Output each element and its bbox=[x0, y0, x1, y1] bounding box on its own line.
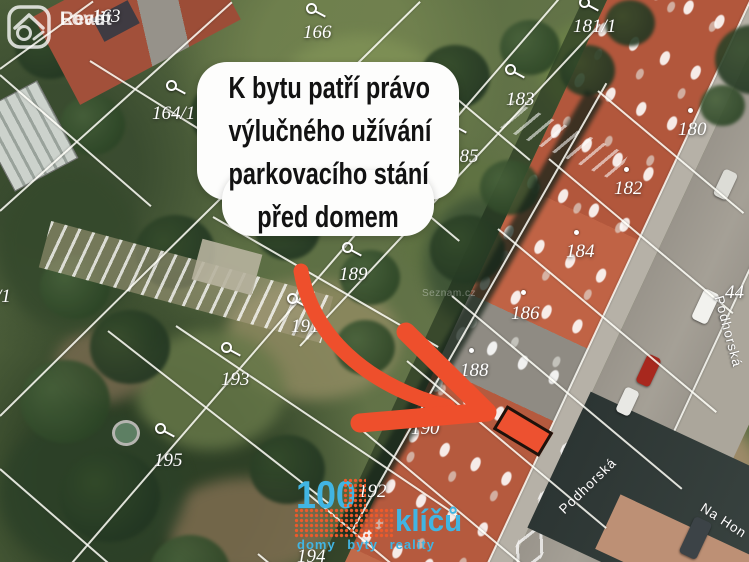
listing-map-image: 163166164/1181/1183180185182184186189188… bbox=[0, 0, 749, 562]
parcel-reference-symbol bbox=[579, 0, 590, 8]
building-point-symbol bbox=[688, 108, 693, 113]
street-name-label: Podhorská bbox=[556, 455, 619, 517]
parcel-number-label: 164/1 bbox=[152, 103, 195, 125]
watermark-line2: Realit bbox=[60, 9, 112, 30]
parcel-reference-symbol bbox=[166, 80, 177, 91]
building-point-symbol bbox=[574, 230, 579, 235]
callout-text-line3: parkovacího stání bbox=[228, 156, 427, 192]
building-point-symbol bbox=[624, 167, 629, 172]
logo-word: klíčů bbox=[395, 503, 462, 539]
callout-text-line1: K bytu patří právo bbox=[228, 70, 427, 106]
parcel-number-label: 183 bbox=[506, 89, 535, 111]
callout-text-line2: výlučného užívání bbox=[228, 113, 427, 149]
parcel-reference-symbol bbox=[342, 242, 353, 253]
callout-text-line4: před domem bbox=[228, 199, 427, 235]
parcel-reference-symbol bbox=[155, 423, 166, 434]
house-logo-icon bbox=[6, 4, 52, 50]
street-name-label: Na Hon bbox=[698, 500, 749, 541]
parcel-number-label: 166 bbox=[303, 22, 332, 44]
parcel-number-label: 193 bbox=[221, 369, 250, 391]
parcel-number-label: 195 bbox=[154, 450, 183, 472]
parcel-reference-symbol bbox=[221, 342, 232, 353]
parcel-reference-symbol bbox=[306, 3, 317, 14]
street-name-label: Podhorská bbox=[712, 294, 746, 369]
parcel-number-label: 181/1 bbox=[573, 16, 616, 38]
parcel-number-label: 182 bbox=[614, 178, 643, 200]
agency-watermark: Love Realit bbox=[6, 4, 166, 54]
parcel-number-label: 186 bbox=[511, 303, 540, 325]
building-point-symbol bbox=[521, 290, 526, 295]
annotation-arrow bbox=[280, 255, 510, 435]
parcel-number-label: 184 bbox=[566, 241, 595, 263]
logo-tagline: domy byty reality bbox=[297, 537, 435, 552]
parcel-number-label: 180 bbox=[678, 119, 707, 141]
parcel-reference-symbol bbox=[505, 64, 516, 75]
logo-dot-block bbox=[294, 508, 394, 538]
logo-pixel-key-icon bbox=[343, 478, 366, 509]
parcel-number-label: /1 bbox=[0, 286, 11, 308]
